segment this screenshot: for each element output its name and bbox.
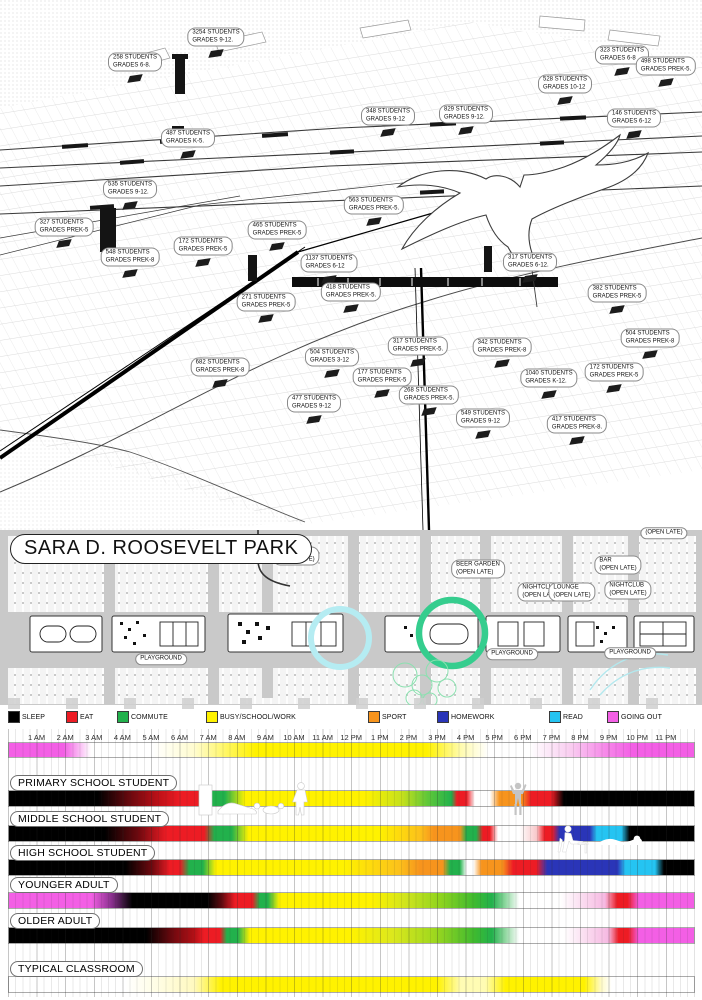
playground-callout: PLAYGROUND: [135, 653, 187, 665]
legend-swatch: [206, 711, 218, 723]
school-callout-line1: 504 STUDENTS: [310, 350, 354, 358]
school-callout-line2: GRADES 9-12: [366, 116, 410, 124]
legend-swatch: [117, 711, 129, 723]
school-callout-line2: GRADES K-5.: [166, 138, 210, 146]
venue-callout: NIGHTCLUB(OPEN LATE): [604, 581, 651, 600]
school-callout-line2: GRADES PREK-5.: [641, 66, 691, 74]
school-callout-line2: GRADES 3-12: [310, 357, 354, 365]
school-callout: 172 STUDENTSGRADES PREK-5: [585, 363, 644, 382]
legend-swatch: [66, 711, 78, 723]
time-tick-label: 1 PM: [371, 733, 389, 742]
school-callout: 504 STUDENTSGRADES PREK-8: [621, 329, 680, 348]
time-tick-label: 4 AM: [114, 733, 131, 742]
school-callout: 829 STUDENTSGRADES 9-12.: [439, 105, 493, 124]
school-callout-line2: GRADES PREK-8: [626, 338, 675, 346]
school-callout: 418 STUDENTSGRADES PREK-5.: [321, 283, 381, 302]
school-callout-line1: 317 STUDENTS: [508, 255, 552, 263]
playground-callout-line1: PLAYGROUND: [491, 650, 533, 658]
school-callout: 548 STUDENTSGRADES PREK-8: [101, 248, 160, 267]
venue-callout-line1: LOUNGE: [553, 585, 590, 593]
legend-swatch: [8, 711, 20, 723]
school-callout: 528 STUDENTSGRADES 10-12: [538, 75, 592, 94]
legend-item: READ: [549, 711, 583, 723]
school-callout-line1: 3254 STUDENTS: [192, 30, 239, 38]
legend-item: EAT: [66, 711, 93, 723]
school-callout-line1: 418 STUDENTS: [326, 285, 376, 293]
school-callout: 477 STUDENTSGRADES 9-12: [287, 394, 341, 413]
legend-label: GOING OUT: [621, 714, 662, 721]
legend-label: SPORT: [382, 714, 407, 721]
time-tick-label: 3 PM: [428, 733, 446, 742]
school-callout: 146 STUDENTSGRADES 6-12: [607, 109, 661, 128]
school-callout-line2: GRADES PREK-8: [478, 347, 527, 355]
school-callout-line1: 549 STUDENTS: [461, 411, 505, 419]
school-callout: 465 STUDENTSGRADES PREK-5: [248, 221, 307, 240]
school-callout: 535 STUDENTSGRADES 9-12.: [103, 180, 157, 199]
school-callout-line2: GRADES PREK-5: [593, 293, 642, 301]
playground-callout-line1: PLAYGROUND: [609, 649, 651, 657]
school-callout-line1: 342 STUDENTS: [478, 340, 527, 348]
park-title: SARA D. ROOSEVELT PARK: [10, 534, 312, 564]
time-tick-label: 4 PM: [457, 733, 475, 742]
time-tick-label: 6 AM: [171, 733, 188, 742]
school-callout-line2: GRADES PREK-5: [358, 377, 407, 385]
school-callout: 563 STUDENTSGRADES PREK-5.: [344, 196, 404, 215]
venue-callout-line1: NIGHTCLUB: [609, 583, 646, 591]
timeline-bar-younger-adult: [8, 892, 695, 909]
school-callout: 342 STUDENTSGRADES PREK-8: [473, 338, 532, 357]
playground-callout: PLAYGROUND: [604, 647, 656, 659]
time-tick-label: 12 PM: [340, 733, 362, 742]
school-callout-line1: 563 STUDENTS: [349, 198, 399, 206]
legend-label: BUSY/SCHOOL/WORK: [220, 714, 296, 721]
time-tick-label: 10 AM: [283, 733, 304, 742]
school-callout-line2: GRADES PREK-5.: [349, 205, 399, 213]
venue-callout-line2: (OPEN LATE): [456, 569, 500, 577]
venue-callout: BEER GARDEN(OPEN LATE): [451, 560, 505, 579]
school-callout-line2: GRADES PREK-5: [179, 246, 228, 254]
legend-swatch: [368, 711, 380, 723]
school-callout-line1: 535 STUDENTS: [108, 182, 152, 190]
school-callout-line2: GRADES PREK-8: [106, 257, 155, 265]
school-callout-line1: 271 STUDENTS: [242, 295, 291, 303]
school-callout: 177 STUDENTSGRADES PREK-5: [353, 368, 412, 387]
time-tick-label: 5 PM: [485, 733, 503, 742]
time-tick-label: 11 AM: [312, 733, 333, 742]
school-callout: 271 STUDENTSGRADES PREK-5: [237, 293, 296, 312]
row-label-typical-classroom: TYPICAL CLASSROOM: [10, 961, 143, 977]
row-label-primary-school-student: PRIMARY SCHOOL STUDENT: [10, 775, 177, 791]
time-tick-label: 2 AM: [57, 733, 74, 742]
time-tick-label: 11 PM: [655, 733, 676, 742]
row-label-older-adult: OLDER ADULT: [10, 913, 100, 929]
school-callout: 327 STUDENTSGRADES PREK-5: [35, 218, 94, 237]
venue-callout: LOUNGE(OPEN LATE): [548, 583, 595, 602]
school-callout-line1: 327 STUDENTS: [40, 220, 89, 228]
school-callout: 417 STUDENTSGRADES PREK-8.: [547, 415, 607, 434]
row-label-younger-adult: YOUNGER ADULT: [10, 877, 118, 893]
school-callout-line1: 528 STUDENTS: [543, 77, 587, 85]
school-callout-line1: 417 STUDENTS: [552, 417, 602, 425]
school-callout-line1: 172 STUDENTS: [590, 365, 639, 373]
venue-callout-line2: (OPEN LATE): [553, 592, 590, 600]
school-callout-line2: GRADES PREK-5.: [393, 346, 443, 354]
school-callout-line2: GRADES 9-12: [292, 403, 336, 411]
street-stubs: [8, 698, 696, 709]
legend-label: EAT: [80, 714, 93, 721]
school-callout: 504 STUDENTSGRADES 3-12: [305, 348, 359, 367]
venue-callout: (OPEN LATE): [640, 527, 687, 539]
school-callout-line2: GRADES PREK-8.: [552, 424, 602, 432]
legend-item: GOING OUT: [607, 711, 662, 723]
school-callout-line2: GRADES PREK-5: [590, 372, 639, 380]
legend-item: SPORT: [368, 711, 407, 723]
school-callout-line2: GRADES PREK-5: [242, 302, 291, 310]
school-callout-line1: 1040 STUDENTS: [525, 371, 572, 379]
venue-callout-line1: BEER GARDEN: [456, 562, 500, 570]
school-callout-line2: GRADES 9-12.: [192, 37, 239, 45]
time-tick-label: 9 AM: [257, 733, 274, 742]
school-callout: 3254 STUDENTSGRADES 9-12.: [187, 28, 244, 47]
school-callout-line2: GRADES 6-12.: [508, 262, 552, 270]
school-callout-line2: GRADES 9-12.: [108, 189, 152, 197]
time-tick-label: 5 AM: [142, 733, 159, 742]
timeline-bar-middle-school-student: [8, 825, 695, 842]
school-callout-line1: 487 STUDENTS: [166, 131, 210, 139]
row-label-middle-school-student: MIDDLE SCHOOL STUDENT: [10, 811, 169, 827]
school-callout: 317 STUDENTSGRADES 6-12.: [503, 253, 557, 272]
school-callout-line2: GRADES PREK-5: [40, 227, 89, 235]
school-callout-line1: 258 STUDENTS: [113, 55, 157, 63]
school-callout-line2: GRADES K-12.: [525, 378, 572, 386]
venue-callout: BAR(OPEN LATE): [594, 556, 641, 575]
legend-item: SLEEP: [8, 711, 45, 723]
diagram-board: SARA D. ROOSEVELT PARK: [0, 0, 702, 1000]
legend-label: HOMEWORK: [451, 714, 495, 721]
school-callout: 317 STUDENTSGRADES PREK-5.: [388, 337, 448, 356]
school-callout-line1: 465 STUDENTS: [253, 223, 302, 231]
school-callout-line2: GRADES PREK-5.: [404, 395, 454, 403]
school-callout-line1: 172 STUDENTS: [179, 239, 228, 247]
school-callout-line2: GRADES PREK-5.: [326, 292, 376, 300]
school-callout-line1: 146 STUDENTS: [612, 111, 656, 119]
time-tick-label: 2 PM: [400, 733, 418, 742]
playground-callout: PLAYGROUND: [486, 648, 538, 660]
playground-callout-line1: PLAYGROUND: [140, 655, 182, 663]
venue-callout-line2: (OPEN LATE): [609, 590, 646, 598]
school-callout-line2: GRADES PREK-5: [253, 230, 302, 238]
row-label-high-school-student: HIGH SCHOOL STUDENT: [10, 845, 155, 861]
legend-swatch: [607, 711, 619, 723]
legend-item: HOMEWORK: [437, 711, 495, 723]
school-callout: 682 STUDENTSGRADES PREK-8: [191, 358, 250, 377]
school-callout-line1: 323 STUDENTS: [600, 48, 644, 56]
legend-item: BUSY/SCHOOL/WORK: [206, 711, 296, 723]
school-callout-line1: 829 STUDENTS: [444, 107, 488, 115]
school-callout: 487 STUDENTSGRADES K-5.: [161, 129, 215, 148]
school-callout: 382 STUDENTSGRADES PREK-5: [588, 284, 647, 303]
school-callout: 1040 STUDENTSGRADES K-12.: [520, 369, 577, 388]
school-callout-line1: 504 STUDENTS: [626, 331, 675, 339]
time-tick-label: 1 AM: [28, 733, 45, 742]
legend-item: COMMUTE: [117, 711, 168, 723]
school-callout: 1137 STUDENTSGRADES 6-12: [301, 254, 358, 273]
school-callout-line1: 682 STUDENTS: [196, 360, 245, 368]
cyan-sketch: [590, 654, 670, 695]
school-callout-line2: GRADES 9-12: [461, 418, 505, 426]
legend-swatch: [549, 711, 561, 723]
school-callout-line1: 177 STUDENTS: [358, 370, 407, 378]
school-callout-line2: GRADES 6-12: [612, 118, 656, 126]
time-tick-label: 7 PM: [543, 733, 561, 742]
school-callout: 348 STUDENTSGRADES 9-12: [361, 107, 415, 126]
venue-callout-line1: (OPEN LATE): [645, 529, 682, 537]
timeline-bar-overall: [8, 742, 695, 758]
timeline-bar-high-school-student: [8, 859, 695, 876]
school-callout-line1: 268 STUDENTS: [404, 388, 454, 396]
school-callout-line2: GRADES PREK-8: [196, 367, 245, 375]
legend-label: READ: [563, 714, 583, 721]
time-tick-label: 9 PM: [600, 733, 618, 742]
time-tick-label: 8 AM: [228, 733, 245, 742]
school-callout-line1: 348 STUDENTS: [366, 109, 410, 117]
school-callout-line2: GRADES 9-12.: [444, 114, 488, 122]
school-callout-line1: 317 STUDENTS: [393, 339, 443, 347]
time-tick-label: 8 PM: [571, 733, 589, 742]
school-callout-line2: GRADES 6-12: [306, 263, 353, 271]
school-callout: 258 STUDENTSGRADES 6-8.: [108, 53, 162, 72]
school-callout-line1: 382 STUDENTS: [593, 286, 642, 294]
time-tick-label: 10 PM: [626, 733, 648, 742]
school-callout-line1: 548 STUDENTS: [106, 250, 155, 258]
time-tick-label: 3 AM: [85, 733, 102, 742]
school-callout: 172 STUDENTSGRADES PREK-5: [174, 237, 233, 256]
timeline-bar-typical-classroom: [8, 976, 695, 993]
school-callout: 498 STUDENTSGRADES PREK-5.: [636, 57, 696, 76]
time-tick-label: 6 PM: [514, 733, 532, 742]
school-callout-line2: GRADES 10-12: [543, 84, 587, 92]
school-callout-line1: 498 STUDENTS: [641, 59, 691, 67]
time-tick-label: 7 AM: [200, 733, 217, 742]
timeline-bar-older-adult: [8, 927, 695, 944]
school-callout-line2: GRADES 6-8.: [113, 62, 157, 70]
legend-label: COMMUTE: [131, 714, 168, 721]
school-callout-line1: 477 STUDENTS: [292, 396, 336, 404]
legend-swatch: [437, 711, 449, 723]
school-callout: 549 STUDENTSGRADES 9-12: [456, 409, 510, 428]
school-callout: 268 STUDENTSGRADES PREK-5.: [399, 386, 459, 405]
legend-label: SLEEP: [22, 714, 45, 721]
venue-callout-line2: (OPEN LATE): [599, 565, 636, 573]
venue-callout-line1: BAR: [599, 558, 636, 566]
timeline-bar-primary-school-student: [8, 790, 695, 807]
school-callout-line1: 1137 STUDENTS: [306, 256, 353, 264]
